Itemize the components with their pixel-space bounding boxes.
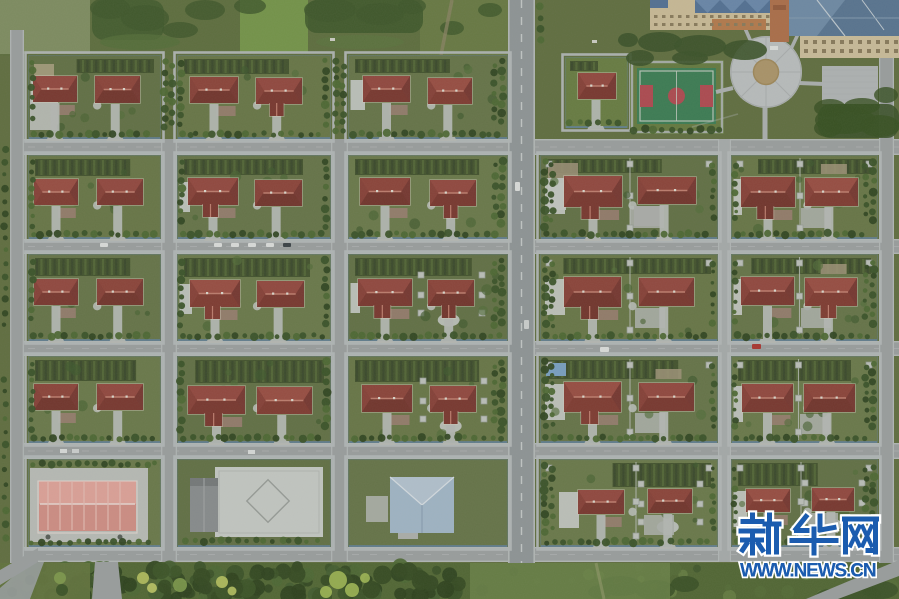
svg-text:WWW.NEWS.CN: WWW.NEWS.CN (740, 561, 877, 582)
